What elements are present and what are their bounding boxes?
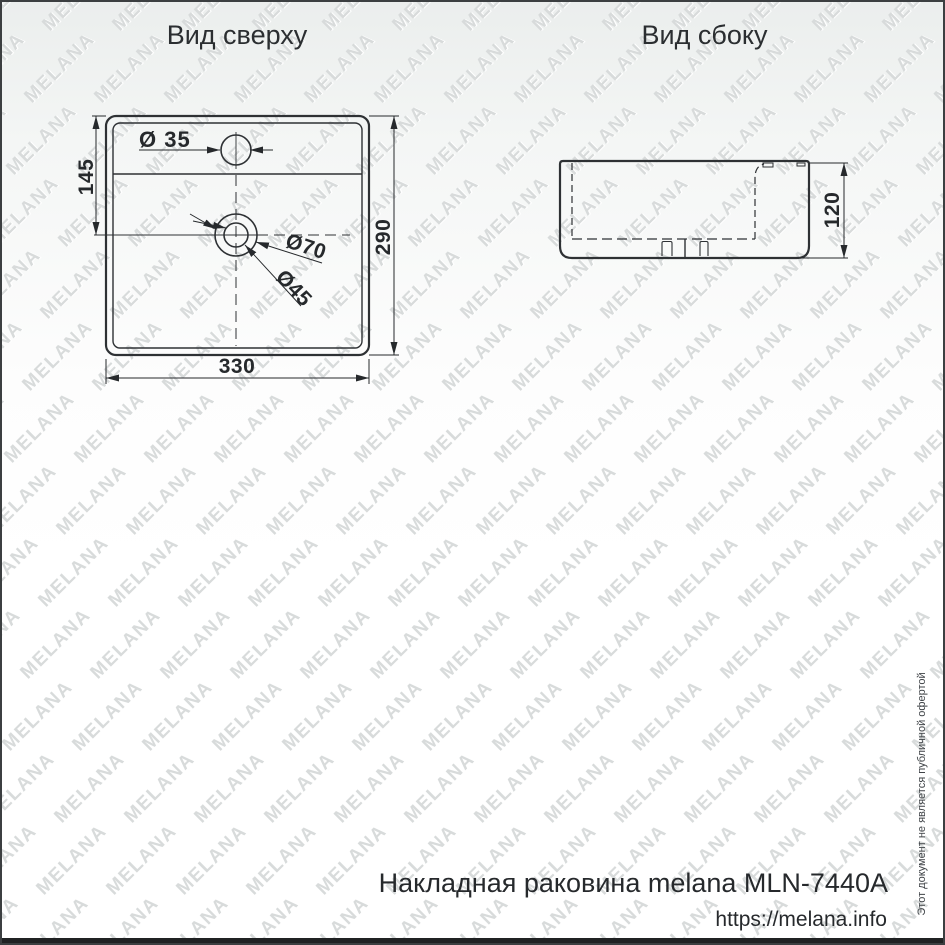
watermark-text: MELANA (0, 605, 26, 684)
watermark-text: MELANA (52, 461, 131, 540)
watermark-text: MELANA (718, 317, 797, 396)
watermark-text: MELANA (422, 101, 501, 180)
watermark-text: MELANA (0, 677, 78, 756)
watermark-text: MELANA (698, 677, 777, 756)
watermark-text: MELANA (752, 461, 831, 540)
watermark-text: MELANA (138, 677, 217, 756)
watermark-text: MELANA (0, 677, 8, 756)
watermark-text: MELANA (804, 533, 883, 612)
watermark-text: MELANA (50, 749, 129, 828)
watermark-text: MELANA (332, 461, 411, 540)
watermark-text: MELANA (768, 677, 847, 756)
watermark-text: MELANA (716, 605, 795, 684)
watermark-text: MELANA (438, 317, 517, 396)
watermark-text: MELANA (820, 749, 899, 828)
watermark-text: MELANA (510, 29, 589, 108)
watermark-text: MELANA (0, 173, 64, 252)
watermark-text: MELANA (2, 101, 81, 180)
watermark-text: MELANA (0, 821, 42, 900)
watermark-text: MELANA (524, 533, 603, 612)
watermark-text: MELANA (876, 245, 945, 324)
watermark-text: MELANA (892, 461, 945, 540)
watermark-text: MELANA (0, 317, 28, 396)
watermark-text: MELANA (490, 389, 569, 468)
watermark-text: MELANA (0, 389, 10, 468)
dim120-label: 120 (821, 192, 844, 229)
watermark-text: MELANA (470, 749, 549, 828)
website-url: https://melana.info (715, 908, 887, 932)
watermark-text: MELANA (878, 0, 945, 36)
watermark-text: MELANA (172, 821, 251, 900)
bottom-accent-bar (2, 938, 943, 943)
watermark-text: MELANA (38, 0, 117, 36)
watermark-text: MELANA (208, 677, 287, 756)
product-name: Накладная раковина melana MLN-7440A (379, 868, 888, 899)
watermark-text: MELANA (0, 0, 48, 36)
watermark-text: MELANA (140, 389, 219, 468)
watermark-text: MELANA (528, 0, 607, 36)
watermark-text: MELANA (296, 605, 375, 684)
watermark-text: MELANA (86, 605, 165, 684)
watermark-text: MELANA (894, 173, 945, 252)
watermark-text: MELANA (70, 389, 149, 468)
watermark-text: MELANA (226, 605, 305, 684)
drain-inner-leader-upper (193, 221, 226, 228)
watermark-text: MELANA (388, 0, 467, 36)
overflow-notch (763, 163, 773, 167)
drain-inner-dim-label: Ø45 (271, 266, 316, 312)
side-view-title: Вид сбоку (602, 20, 807, 51)
watermark-text: MELANA (786, 605, 865, 684)
watermark-text: MELANA (578, 317, 657, 396)
watermark-text: MELANA (558, 677, 637, 756)
watermark-text: MELANA (402, 461, 481, 540)
watermark-text: MELANA (436, 605, 515, 684)
watermark-text: MELANA (822, 461, 901, 540)
watermark-text: MELANA (366, 605, 445, 684)
watermark-text: MELANA (400, 749, 479, 828)
watermark-text: MELANA (0, 101, 12, 180)
watermark-text: MELANA (262, 461, 341, 540)
watermark-text: MELANA (576, 605, 655, 684)
drain-outer-dim-label: Ø70 (283, 230, 329, 265)
watermark-text: MELANA (350, 389, 429, 468)
top-view-drawing: Ø 35 Ø70 Ø45 145 290 330 (77, 97, 417, 397)
watermark-text: MELANA (910, 389, 945, 468)
watermark-text: MELANA (874, 533, 945, 612)
top-view-title: Вид сверху (137, 20, 337, 51)
disclaimer-text: Этот документ не является публичной офер… (916, 672, 928, 915)
dim145-label: 145 (77, 159, 98, 196)
watermark-text: MELANA (628, 677, 707, 756)
watermark-text: MELANA (808, 0, 887, 36)
watermark-text: MELANA (734, 533, 813, 612)
drain-tab-right (700, 242, 708, 257)
watermark-text: MELANA (260, 749, 339, 828)
watermark-text: MELANA (928, 317, 945, 396)
spec-sheet-page: MELANAMELANAMELANAMELANAMELANAMELANAMELA… (0, 0, 945, 945)
watermark-text: MELANA (664, 533, 743, 612)
watermark-text: MELANA (280, 389, 359, 468)
side-view-drawing: 120 (542, 142, 857, 272)
watermark-text: MELANA (244, 533, 323, 612)
watermark-text: MELANA (838, 677, 917, 756)
watermark-text: MELANA (840, 389, 919, 468)
watermark-text: MELANA (16, 605, 95, 684)
watermark-text: MELANA (156, 605, 235, 684)
watermark-text: MELANA (278, 677, 357, 756)
drain-tab-left (662, 242, 672, 257)
watermark-text: MELANA (122, 461, 201, 540)
watermark-text: MELANA (192, 461, 271, 540)
watermark-text: MELANA (210, 389, 289, 468)
watermark-text: MELANA (860, 29, 939, 108)
watermark-text: MELANA (542, 461, 621, 540)
watermark-text: MELANA (912, 101, 945, 180)
watermark-text: MELANA (104, 533, 183, 612)
watermark-text: MELANA (120, 749, 199, 828)
watermark-text: MELANA (508, 317, 587, 396)
watermark-text: MELANA (458, 0, 537, 36)
watermark-text: MELANA (68, 677, 147, 756)
watermark-text: MELANA (646, 605, 725, 684)
watermark-text: MELANA (594, 533, 673, 612)
watermark-text: MELANA (102, 821, 181, 900)
watermark-text: MELANA (314, 533, 393, 612)
watermark-text: MELANA (420, 389, 499, 468)
watermark-text: MELANA (456, 245, 535, 324)
watermark-text: MELANA (930, 29, 945, 108)
watermark-text: MELANA (750, 749, 829, 828)
watermark-text: MELANA (0, 749, 60, 828)
dim330-label: 330 (219, 355, 256, 378)
watermark-text: MELANA (330, 749, 409, 828)
watermark-text: MELANA (682, 461, 761, 540)
watermark-text: MELANA (190, 749, 269, 828)
watermark-text: MELANA (770, 389, 849, 468)
watermark-text: MELANA (858, 317, 937, 396)
watermark-text: MELANA (560, 389, 639, 468)
watermark-text: MELANA (630, 389, 709, 468)
watermark-text: MELANA (0, 29, 30, 108)
dim290-label: 290 (372, 219, 395, 256)
watermark-text: MELANA (32, 821, 111, 900)
watermark-text: MELANA (0, 533, 44, 612)
watermark-text: MELANA (440, 29, 519, 108)
watermark-text: MELANA (242, 821, 321, 900)
watermark-text: MELANA (384, 533, 463, 612)
faucet-dim-label: Ø 35 (139, 127, 191, 152)
watermark-text: MELANA (680, 749, 759, 828)
watermark-text: MELANA (488, 677, 567, 756)
watermark-text: MELANA (506, 605, 585, 684)
faucet-hole-notch (797, 163, 805, 166)
watermark-text: MELANA (612, 461, 691, 540)
watermark-text: MELANA (34, 533, 113, 612)
watermark-text: MELANA (610, 749, 689, 828)
watermark-text: MELANA (454, 533, 533, 612)
watermark-text: MELANA (700, 389, 779, 468)
watermark-text: MELANA (174, 533, 253, 612)
watermark-text: MELANA (648, 317, 727, 396)
watermark-text: MELANA (418, 677, 497, 756)
basin-hidden-right (755, 164, 764, 239)
watermark-text: MELANA (0, 389, 79, 468)
watermark-text: MELANA (926, 605, 945, 684)
watermark-text: MELANA (788, 317, 867, 396)
watermark-text: MELANA (472, 461, 551, 540)
watermark-text: MELANA (348, 677, 427, 756)
watermark-text: MELANA (0, 461, 62, 540)
watermark-text: MELANA (540, 749, 619, 828)
watermark-text: MELANA (0, 245, 46, 324)
